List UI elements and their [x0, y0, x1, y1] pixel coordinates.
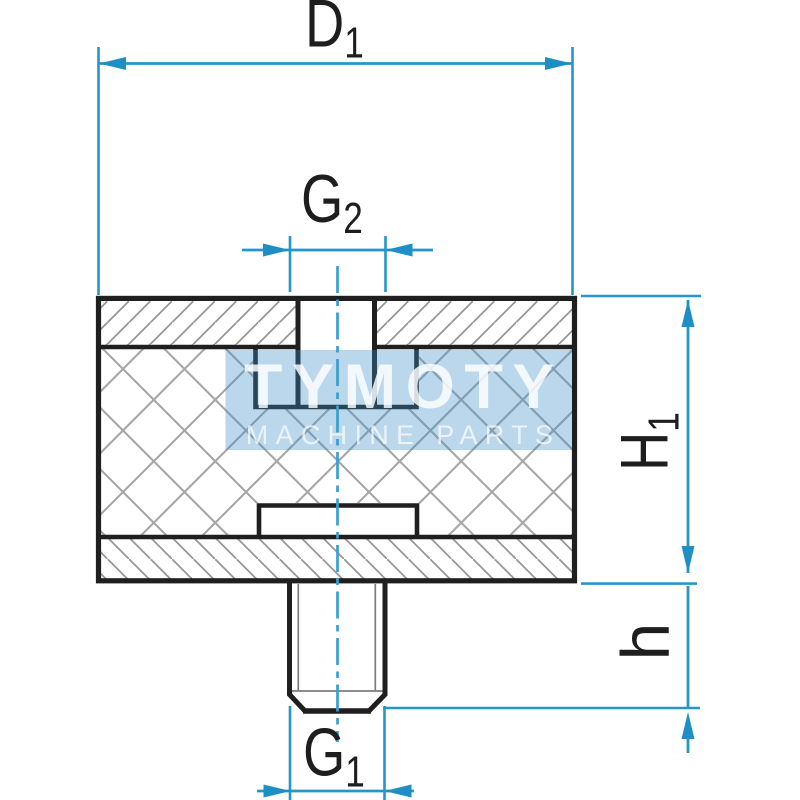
svg-text:MACHINE PARTS: MACHINE PARTS: [246, 420, 560, 450]
svg-text:h: h: [608, 623, 684, 661]
svg-text:TYMOTY: TYMOTY: [244, 352, 564, 422]
